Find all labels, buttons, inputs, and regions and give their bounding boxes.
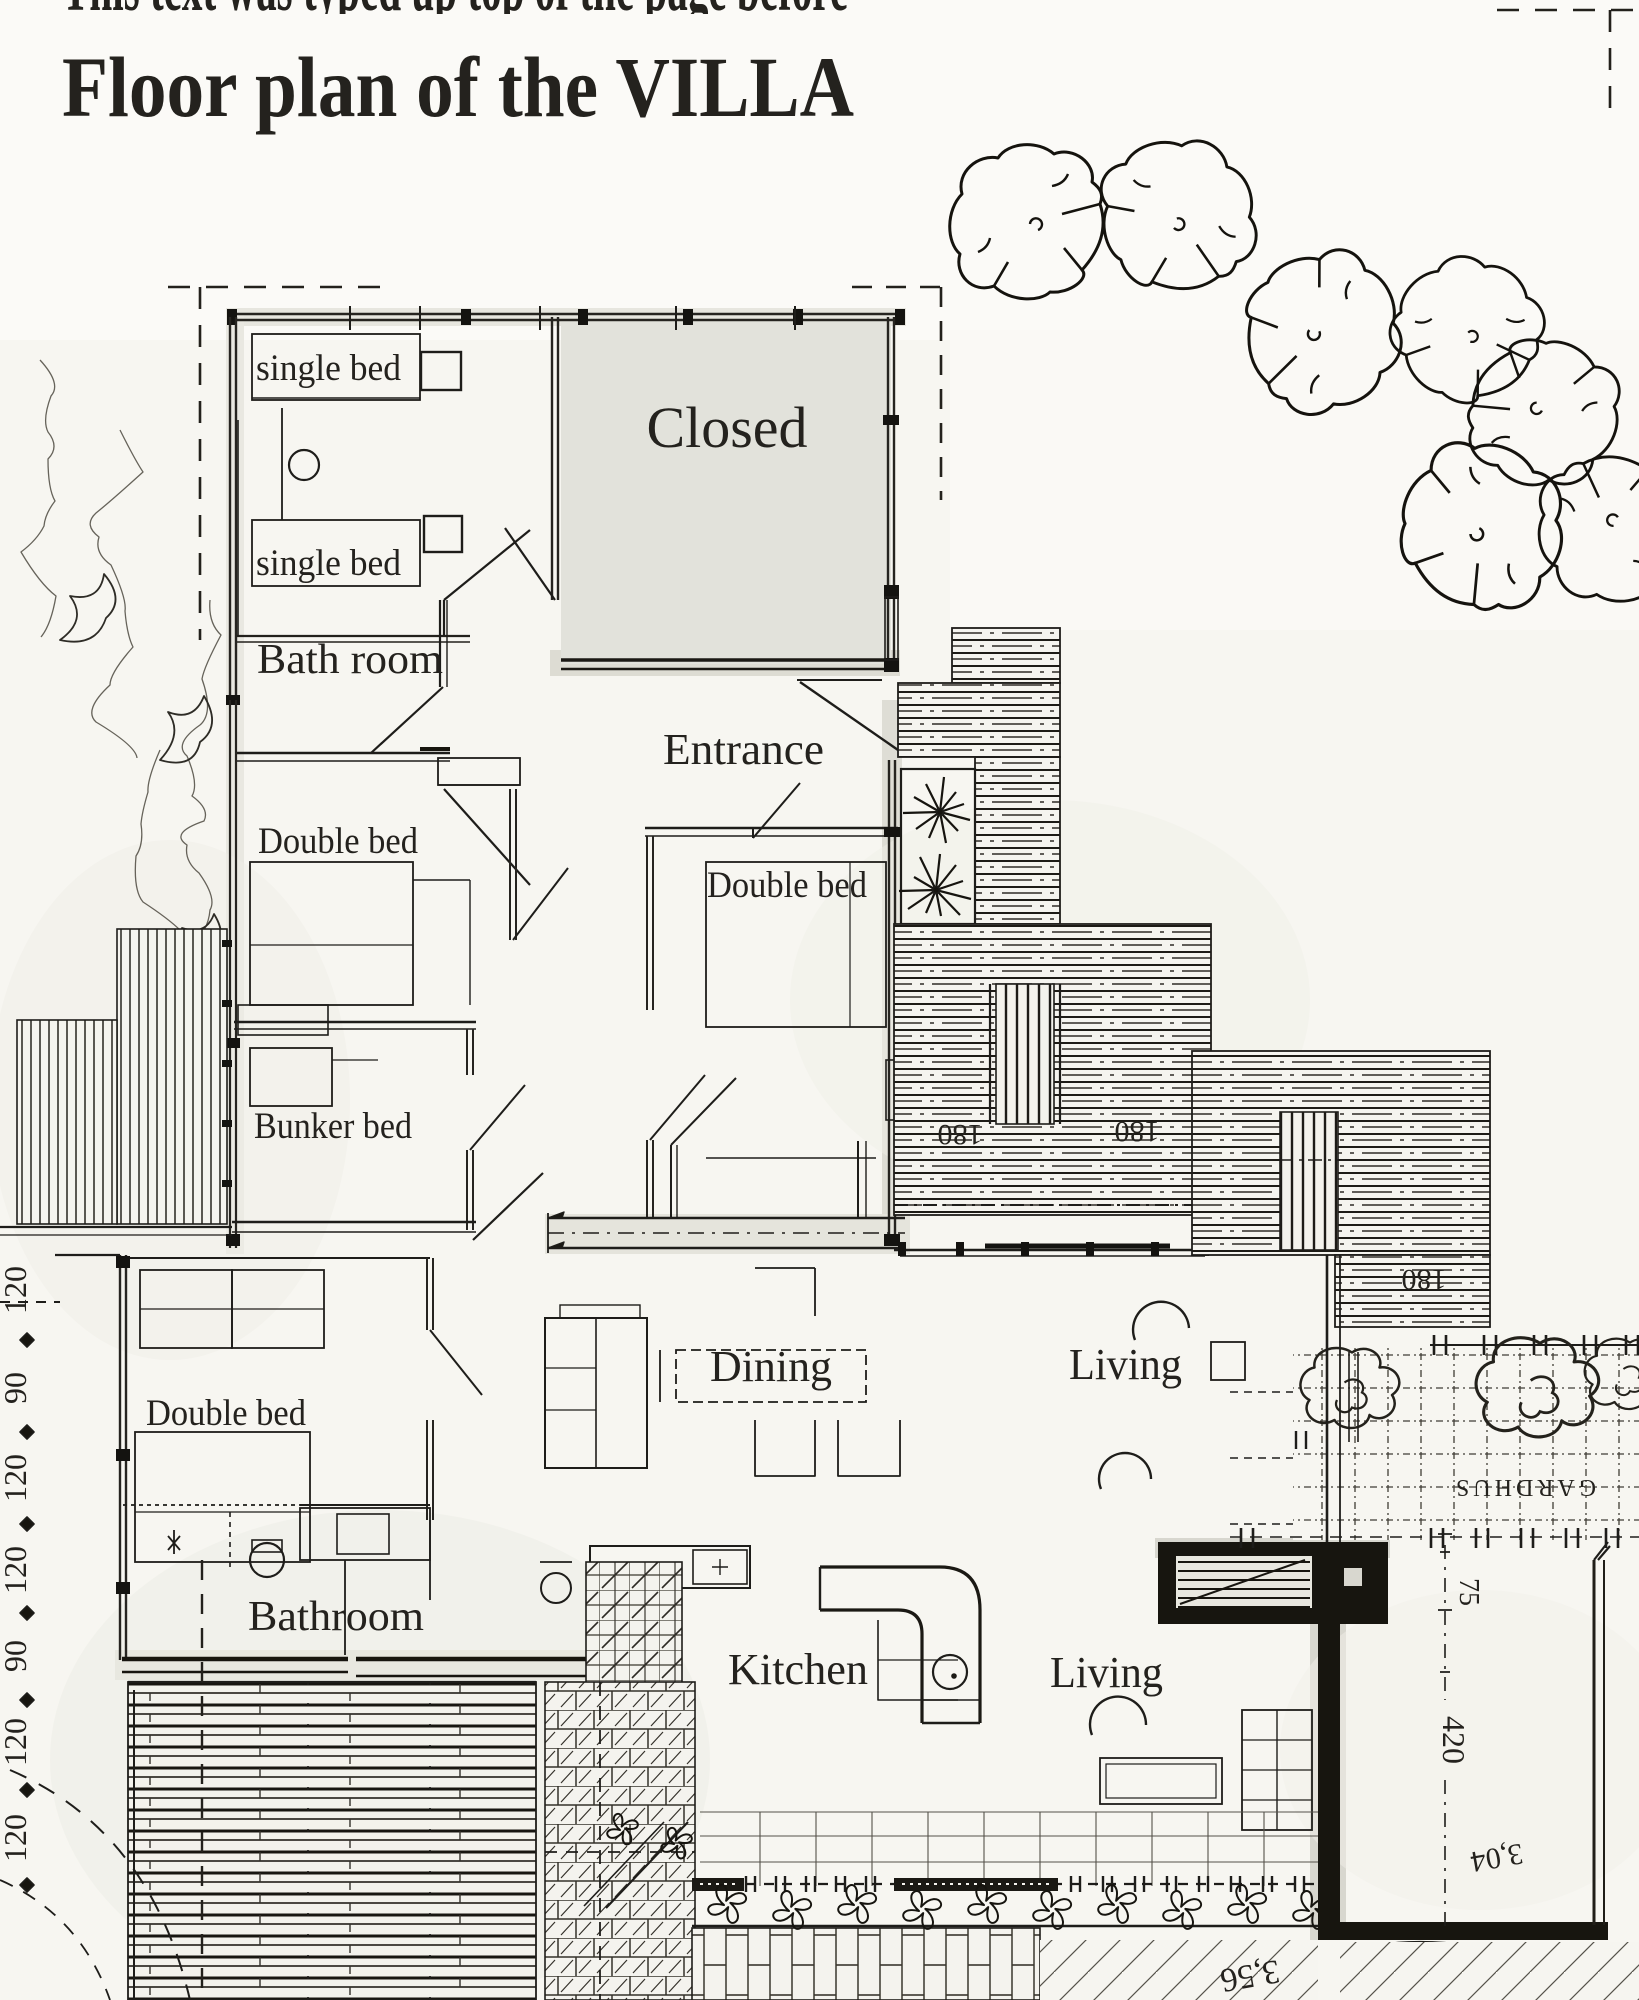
svg-text:180: 180	[1402, 1263, 1447, 1296]
svg-text:Entrance: Entrance	[663, 725, 824, 774]
svg-text:Floor plan of the VILLA: Floor plan of the VILLA	[62, 39, 854, 135]
svg-text:420: 420	[1436, 1716, 1472, 1764]
svg-text:180: 180	[1115, 1115, 1160, 1148]
svg-text:Bathroom: Bathroom	[248, 1594, 424, 1640]
svg-text:180: 180	[938, 1118, 983, 1151]
svg-text:Living: Living	[1050, 1648, 1163, 1697]
svg-text:single bed: single bed	[256, 543, 401, 584]
svg-text:Double bed: Double bed	[146, 1393, 306, 1434]
svg-text:120: 120	[0, 1814, 33, 1862]
svg-text:120: 120	[0, 1266, 33, 1314]
svg-text:Closed: Closed	[646, 395, 807, 460]
svg-text:90: 90	[0, 1372, 33, 1404]
svg-text:90: 90	[0, 1640, 33, 1672]
svg-text:120: 120	[0, 1718, 33, 1766]
svg-text:120: 120	[0, 1454, 33, 1502]
svg-text:120: 120	[0, 1546, 33, 1594]
svg-text:Kitchen: Kitchen	[728, 1645, 868, 1694]
svg-text:Double bed: Double bed	[707, 865, 867, 906]
svg-text:Living: Living	[1069, 1340, 1182, 1389]
svg-text:GARDHUS: GARDHUS	[1452, 1474, 1596, 1500]
svg-text:75: 75	[1453, 1578, 1484, 1606]
svg-text:Double bed: Double bed	[258, 821, 418, 862]
svg-text:Bunker bed: Bunker bed	[254, 1106, 412, 1147]
svg-text:Bath room: Bath room	[257, 637, 443, 683]
svg-text:single bed: single bed	[256, 348, 401, 389]
